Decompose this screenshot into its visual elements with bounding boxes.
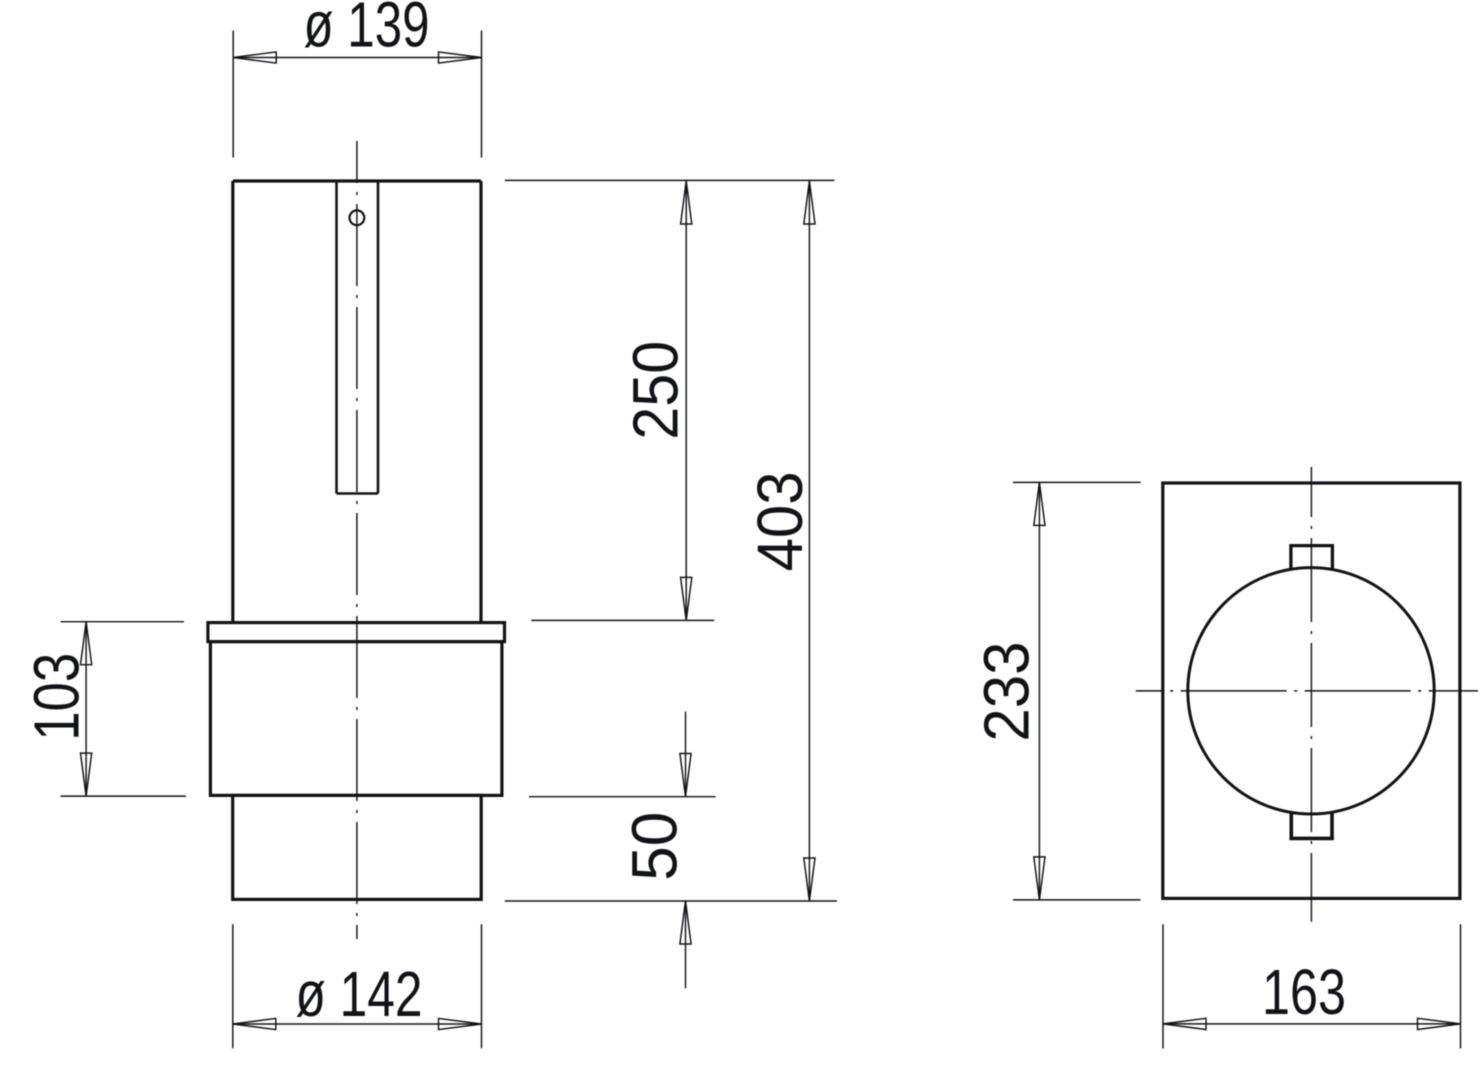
svg-text:ø 139: ø 139 bbox=[304, 0, 430, 61]
svg-text:103: 103 bbox=[21, 653, 93, 741]
svg-text:50: 50 bbox=[619, 812, 691, 881]
svg-text:163: 163 bbox=[1262, 956, 1346, 1028]
svg-text:403: 403 bbox=[744, 471, 816, 571]
svg-text:233: 233 bbox=[971, 642, 1043, 742]
svg-text:ø 142: ø 142 bbox=[296, 958, 423, 1030]
svg-text:250: 250 bbox=[620, 341, 692, 440]
